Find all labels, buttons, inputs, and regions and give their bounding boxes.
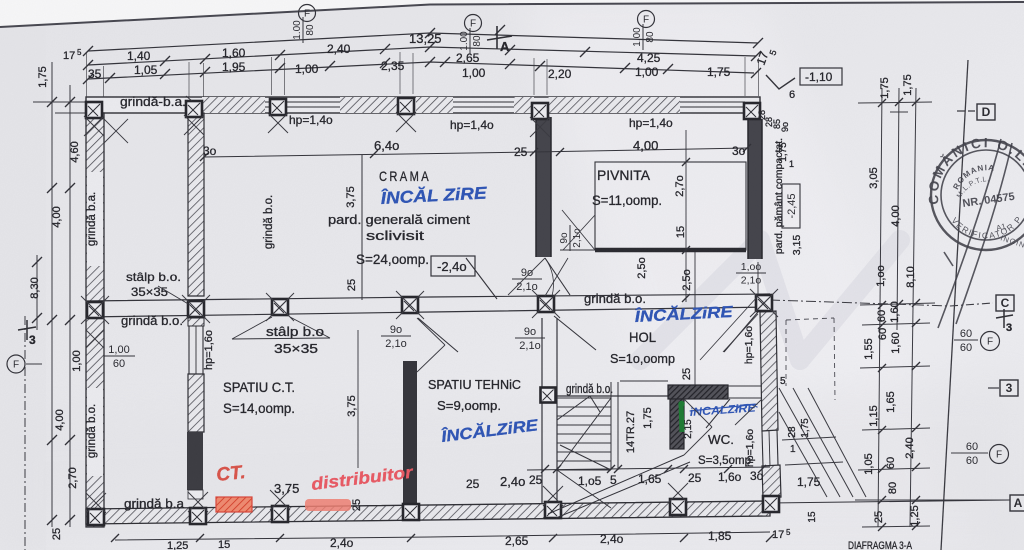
- svg-text:CT.: CT.: [215, 462, 246, 486]
- svg-text:15: 15: [675, 226, 687, 238]
- svg-text:CRAMA: CRAMA: [379, 168, 431, 184]
- svg-text:25: 25: [529, 473, 543, 487]
- svg-text:stâlp b.o: stâlp b.o: [266, 325, 324, 339]
- svg-text:F: F: [304, 9, 310, 20]
- svg-text:60: 60: [960, 342, 972, 354]
- svg-text:60: 60: [877, 328, 889, 340]
- svg-text:25: 25: [351, 499, 363, 511]
- svg-text:3o: 3o: [750, 469, 764, 483]
- svg-text:1,6o: 1,6o: [718, 470, 742, 484]
- svg-text:2,40: 2,40: [904, 437, 916, 458]
- svg-text:1,00: 1,00: [635, 65, 659, 79]
- svg-text:25: 25: [514, 145, 528, 159]
- svg-text:4,60: 4,60: [69, 141, 81, 162]
- svg-text:S=9,oomp.: S=9,oomp.: [437, 398, 501, 413]
- svg-text:2,70: 2,70: [67, 467, 79, 488]
- svg-text:4,25: 4,25: [637, 51, 661, 65]
- svg-text:5: 5: [77, 48, 82, 57]
- svg-text:-2,4o: -2,4o: [437, 259, 467, 274]
- svg-text:1,75: 1,75: [37, 66, 49, 87]
- svg-text:60: 60: [885, 457, 897, 469]
- svg-text:F: F: [987, 337, 993, 348]
- svg-text:35×35: 35×35: [131, 285, 168, 299]
- svg-text:8,10: 8,10: [905, 266, 917, 287]
- svg-text:9o: 9o: [521, 267, 533, 279]
- svg-text:1,75: 1,75: [800, 418, 811, 438]
- svg-text:3,75: 3,75: [345, 186, 357, 207]
- svg-text:1,75: 1,75: [778, 142, 789, 162]
- svg-text:F: F: [470, 19, 476, 30]
- svg-text:13,25: 13,25: [409, 31, 442, 46]
- svg-text:2,1o: 2,1o: [741, 275, 762, 287]
- svg-text:1,00: 1,00: [108, 344, 129, 356]
- svg-text:60: 60: [876, 310, 888, 322]
- svg-text:1,15: 1,15: [868, 405, 880, 426]
- svg-text:sclivisit: sclivisit: [366, 228, 425, 243]
- svg-text:pard. generală ciment: pard. generală ciment: [328, 212, 470, 227]
- svg-text:1,85: 1,85: [708, 529, 732, 543]
- svg-text:stâlp b.o.: stâlp b.o.: [126, 270, 181, 284]
- svg-text:2,65: 2,65: [456, 51, 480, 65]
- svg-text:3o: 3o: [203, 144, 217, 158]
- svg-text:S=24,oomp.: S=24,oomp.: [356, 252, 429, 267]
- svg-text:3,15: 3,15: [791, 235, 803, 256]
- svg-text:17: 17: [63, 50, 75, 62]
- svg-text:F: F: [643, 15, 649, 26]
- svg-text:1,75: 1,75: [902, 74, 914, 95]
- svg-text:2,1o: 2,1o: [519, 340, 540, 352]
- svg-text:3,75: 3,75: [346, 395, 358, 416]
- svg-text:D: D: [982, 105, 991, 119]
- svg-text:25: 25: [346, 279, 358, 291]
- svg-text:60: 60: [966, 455, 978, 467]
- svg-text:25: 25: [466, 477, 480, 491]
- svg-text:grindă b.o.: grindă b.o.: [263, 195, 275, 249]
- svg-text:3: 3: [1006, 381, 1013, 395]
- svg-text:80: 80: [887, 482, 899, 494]
- svg-text:1,25: 1,25: [167, 540, 188, 550]
- svg-text:3o: 3o: [732, 144, 746, 158]
- svg-text:25: 25: [873, 511, 885, 523]
- svg-text:1,95: 1,95: [222, 60, 246, 74]
- svg-text:grindă b.o.: grindă b.o.: [566, 382, 613, 396]
- svg-text:1.00: 1.00: [292, 20, 303, 40]
- svg-text:1,60: 1,60: [890, 332, 902, 353]
- svg-text:SPATIU TEHNiC: SPATIU TEHNiC: [428, 377, 521, 392]
- svg-text:DIAFRAGMA 3-A: DIAFRAGMA 3-A: [848, 540, 912, 550]
- svg-text:3,05: 3,05: [868, 167, 880, 188]
- svg-text:2,1o: 2,1o: [516, 281, 537, 293]
- svg-text:9o: 9o: [524, 326, 536, 338]
- svg-text:2,4o: 2,4o: [600, 532, 624, 546]
- svg-text:2,35: 2,35: [381, 59, 405, 73]
- svg-text:2,7o: 2,7o: [674, 175, 686, 196]
- svg-text:1,75: 1,75: [797, 475, 821, 489]
- svg-text:1: 1: [789, 159, 794, 169]
- svg-text:3,75: 3,75: [274, 481, 299, 496]
- svg-text:hp=1,6o: hp=1,6o: [203, 330, 215, 370]
- svg-text:80: 80: [305, 24, 316, 36]
- svg-text:1.00: 1.00: [632, 27, 643, 47]
- svg-text:hp=1,6o: hp=1,6o: [743, 326, 755, 364]
- svg-text:1,05: 1,05: [863, 453, 875, 474]
- svg-text:PIVNITA: PIVNITA: [597, 168, 650, 183]
- svg-text:9o: 9o: [559, 232, 570, 244]
- svg-text:6,4o: 6,4o: [374, 138, 399, 153]
- svg-text:S=14,oomp.: S=14,oomp.: [223, 401, 295, 416]
- svg-text:1,05: 1,05: [134, 63, 158, 77]
- svg-text:4,00: 4,00: [890, 205, 902, 226]
- svg-text:2,1o: 2,1o: [385, 338, 406, 350]
- svg-text:4,00: 4,00: [51, 206, 63, 227]
- svg-text:3: 3: [29, 333, 36, 347]
- svg-text:14TR.27: 14TR.27: [625, 411, 637, 453]
- svg-text:1,65: 1,65: [638, 472, 662, 486]
- svg-text:1,75: 1,75: [707, 65, 731, 79]
- svg-text:60: 60: [960, 328, 972, 340]
- svg-text:1,60: 1,60: [222, 46, 246, 60]
- svg-text:2,5o: 2,5o: [681, 269, 693, 290]
- svg-text:2,65: 2,65: [505, 534, 529, 548]
- svg-text:hp=1,4o: hp=1,4o: [629, 116, 673, 130]
- svg-text:-1,10: -1,10: [805, 70, 833, 84]
- svg-text:80: 80: [645, 31, 656, 43]
- svg-text:1,75: 1,75: [642, 407, 654, 428]
- svg-text:4,00: 4,00: [54, 409, 66, 430]
- svg-text:2,20: 2,20: [548, 67, 572, 81]
- svg-text:25: 25: [688, 471, 702, 485]
- svg-text:S=11,oomp.: S=11,oomp.: [592, 193, 662, 208]
- svg-text:2,4o: 2,4o: [500, 474, 525, 489]
- svg-text:5: 5: [786, 528, 791, 537]
- svg-text:35×35: 35×35: [274, 342, 318, 356]
- svg-text:grindă-b.a.: grindă-b.a.: [120, 95, 186, 109]
- svg-text:25: 25: [51, 528, 63, 540]
- svg-text:hp=1,4o: hp=1,4o: [289, 113, 333, 127]
- svg-text:15: 15: [218, 539, 230, 550]
- svg-text:1,o5: 1,o5: [578, 474, 602, 488]
- svg-text:9o: 9o: [390, 324, 402, 336]
- svg-text:4,00: 4,00: [633, 138, 658, 153]
- svg-text:5: 5: [780, 376, 786, 387]
- svg-text:1,00: 1,00: [71, 350, 83, 371]
- svg-text:grindă b.o.: grindă b.o.: [584, 292, 646, 306]
- svg-text:1,oo: 1,oo: [875, 265, 887, 286]
- svg-text:grindă b.a.: grindă b.a.: [86, 192, 98, 246]
- svg-text:15: 15: [807, 511, 818, 523]
- svg-text:8,30: 8,30: [29, 277, 41, 298]
- svg-text:WC.: WC.: [708, 432, 734, 447]
- svg-text:grindă b.a: grindă b.a: [124, 497, 184, 511]
- svg-text:F: F: [996, 450, 1002, 461]
- svg-text:35: 35: [88, 67, 102, 81]
- svg-text:1,55: 1,55: [863, 338, 875, 359]
- svg-text:25: 25: [681, 368, 693, 380]
- svg-text:HOL: HOL: [629, 329, 656, 345]
- svg-text:1,00: 1,00: [295, 62, 319, 76]
- svg-text:A: A: [500, 39, 510, 54]
- svg-text:1,00: 1,00: [462, 66, 486, 80]
- svg-text:1,65: 1,65: [885, 391, 897, 412]
- svg-text:1,oo: 1,oo: [741, 261, 762, 273]
- svg-text:1.00: 1.00: [459, 31, 470, 51]
- svg-text:SPATIU C.T.: SPATIU C.T.: [223, 380, 295, 395]
- svg-text:28: 28: [787, 426, 798, 438]
- svg-text:S=1o,oomp: S=1o,oomp: [610, 351, 675, 366]
- svg-text:2,5o: 2,5o: [636, 257, 648, 278]
- svg-text:C: C: [1001, 296, 1010, 310]
- svg-text:grindă b.o.: grindă b.o.: [86, 404, 98, 458]
- svg-text:1,25: 1,25: [909, 505, 921, 526]
- svg-text:80: 80: [472, 35, 483, 47]
- svg-text:S=3,5omp: S=3,5omp: [698, 453, 751, 467]
- svg-text:grindă b.o.: grindă b.o.: [121, 314, 183, 328]
- svg-text:2,4o: 2,4o: [330, 536, 354, 550]
- svg-text:1,75: 1,75: [879, 77, 891, 98]
- svg-text:60: 60: [113, 358, 125, 370]
- svg-text:A: A: [1014, 496, 1023, 510]
- svg-text:17: 17: [772, 529, 784, 541]
- svg-text:60: 60: [966, 441, 978, 453]
- svg-text:1,40: 1,40: [127, 49, 151, 63]
- svg-text:2,15: 2,15: [683, 419, 694, 439]
- svg-text:3: 3: [1006, 322, 1012, 334]
- svg-text:2,40: 2,40: [327, 42, 351, 56]
- svg-text:F: F: [13, 360, 19, 371]
- svg-text:-2,45: -2,45: [786, 193, 798, 218]
- svg-text:hp=1,4o: hp=1,4o: [450, 118, 494, 132]
- svg-text:6: 6: [789, 89, 795, 101]
- svg-text:9o: 9o: [780, 122, 790, 132]
- svg-text:5: 5: [610, 473, 617, 487]
- svg-text:1: 1: [790, 444, 796, 455]
